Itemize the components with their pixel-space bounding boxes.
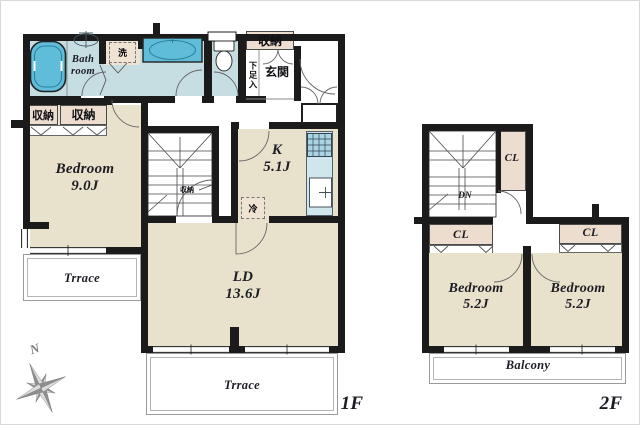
shoe-cabinet-label: 下足入 [247,54,259,96]
terrace-side-label: Trrace [32,271,132,285]
floor1-label: 1F [335,393,369,415]
closet-right-2f-label: CL [559,226,622,240]
compass-north-label: N [23,339,47,359]
bedroom-9-name: Bedroom [35,161,135,178]
staircase-1f-room [148,133,212,216]
bedroom-9-area: 9.0J [35,178,135,195]
hall-closet-box [301,103,338,125]
closet-folding-doors [28,125,107,136]
kitchen-area: 5.1J [247,159,307,176]
balcony-label: Balcony [478,358,578,372]
bedroom-9-label: Bedroom 9.0J [35,161,135,196]
closet-left-label: 収納 [28,107,58,123]
kitchen-label: K 5.1J [247,142,307,177]
terrace-main-label: Trrace [192,378,292,392]
bedroom-left-2f-area: 5.2J [431,297,521,313]
closet-upper-2f-label: CL [498,152,526,165]
kitchen-name: K [247,142,307,159]
closet-left-2f-label: CL [429,228,493,242]
bedroom-right-2f-label: Bedroom 5.2J [533,281,623,313]
bathroom-label: Bath room [63,54,103,78]
bedroom-left-2f-name: Bedroom [431,281,521,297]
compass-rose-icon [17,364,66,413]
refrigerator-space: 冷 [241,197,265,219]
bedroom-left-2f-label: Bedroom 5.2J [431,281,521,313]
floor-plan-canvas: 洗 冷 [0,0,640,425]
closet-right-2f-doors [559,244,622,253]
kitchen-counter [306,131,333,216]
stair-storage-label: 収納 [173,185,201,195]
stairs-down-label: DN [451,190,479,200]
living-dining-label: LD 13.6J [193,269,293,304]
floor2-label: 2F [593,393,629,415]
bedroom-right-2f-area: 5.2J [533,297,623,313]
staircase-2f-room [429,131,496,217]
living-name: LD [193,269,293,286]
entrance-label: 玄関 [259,63,295,80]
bedroom-right-2f-name: Bedroom [533,281,623,297]
closet-right-label: 収納 [60,106,107,123]
laundry-space: 洗 [109,42,136,63]
entry-storage-label: 収納 [246,32,294,49]
living-area: 13.6J [193,286,293,303]
